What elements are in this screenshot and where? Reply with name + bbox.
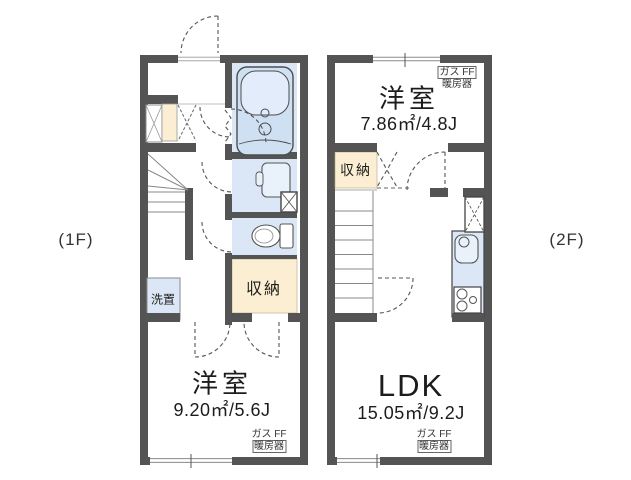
bedroom-size-2f: 7.86㎡/4.8J: [360, 110, 457, 136]
floor1-tag: (1F): [58, 230, 93, 250]
heater-line1: ガス FF: [252, 429, 287, 440]
heater-line2: 暖房器: [442, 79, 472, 90]
laundry-label: 洗置: [151, 291, 175, 308]
floorplan-canvas: (1F) (2F) 収納 洗置 洋室 9.20㎡/5.6J ガス FF 暖房器 …: [0, 0, 631, 480]
bedroom-title-1f: 洋室: [192, 364, 252, 401]
gas-heater-label-1f: ガス FF 暖房器: [252, 429, 287, 453]
entrance-opening: [178, 55, 220, 63]
washer-box: [281, 192, 297, 212]
heater-line2: 暖房器: [252, 440, 286, 453]
window-1f: [150, 454, 232, 468]
floor2-tag: (2F): [549, 230, 584, 250]
storage-label-2f: 収納: [340, 160, 372, 180]
bathtub: [237, 67, 293, 155]
storage-label-1f: 収納: [246, 275, 282, 299]
gas-heater-label-2f-top: ガス FF 暖房器: [438, 66, 477, 90]
gas-heater-label-2f-bottom: ガス FF 暖房器: [417, 429, 452, 453]
heater-line2: 暖房器: [417, 440, 451, 453]
door-gaps-1f: [225, 108, 232, 253]
pipe-space-box: [465, 197, 484, 232]
stove: [454, 287, 481, 313]
heater-line1: ガス FF: [438, 66, 477, 79]
ldk-size: 15.05㎡/9.2J: [357, 399, 465, 425]
kitchen-sink: [455, 235, 478, 263]
toilet: [252, 224, 293, 248]
bedroom-size-1f: 9.20㎡/5.6J: [173, 396, 270, 422]
window-2f-bottom: [337, 454, 380, 468]
heater-line1: ガス FF: [417, 429, 452, 440]
